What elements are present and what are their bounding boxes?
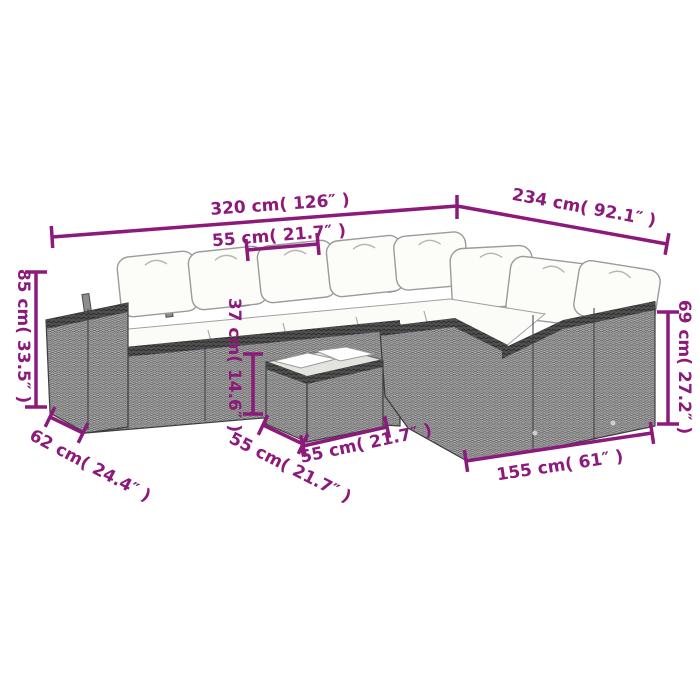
dim-label-seat-height: 37 cm( 14.6″ ) bbox=[224, 298, 244, 432]
product-dimension-diagram: 320 cm( 126″ ) 234 cm( 92.1″ ) 55 cm( 21… bbox=[0, 0, 700, 700]
dimension-lines bbox=[0, 0, 700, 700]
dim-label-right-back-height: 69 cm( 27.2″ ) bbox=[674, 300, 694, 434]
dim-label-total-height: 85 cm( 33.5″ ) bbox=[13, 269, 33, 403]
